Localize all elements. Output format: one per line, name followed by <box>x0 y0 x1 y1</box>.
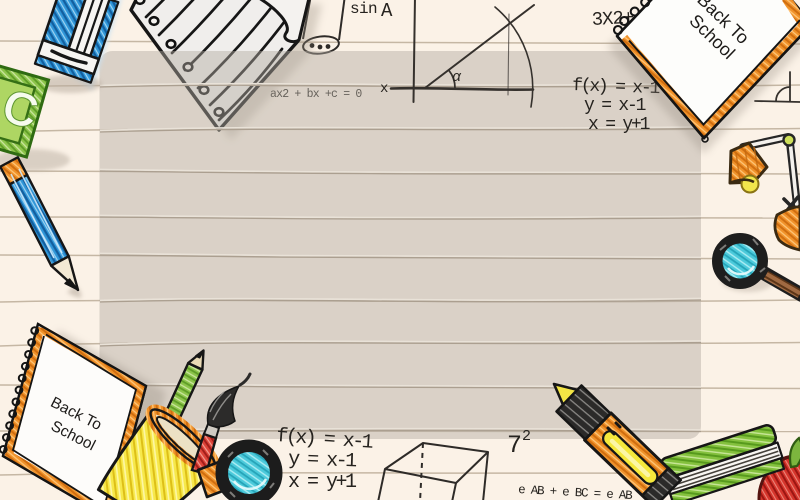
svg-text:sin: sin <box>350 0 377 18</box>
svg-text:A: A <box>381 0 393 22</box>
svg-text:x = y+1: x = y+1 <box>288 471 357 494</box>
svg-text:2: 2 <box>522 428 531 445</box>
svg-text:y = x-1: y = x-1 <box>584 96 646 116</box>
svg-text:α: α <box>452 69 462 86</box>
svg-text:7: 7 <box>507 431 522 460</box>
svg-text:x = y+1: x = y+1 <box>588 115 650 135</box>
svg-text:x: x <box>380 81 388 97</box>
svg-text:y = x-1: y = x-1 <box>288 448 358 473</box>
